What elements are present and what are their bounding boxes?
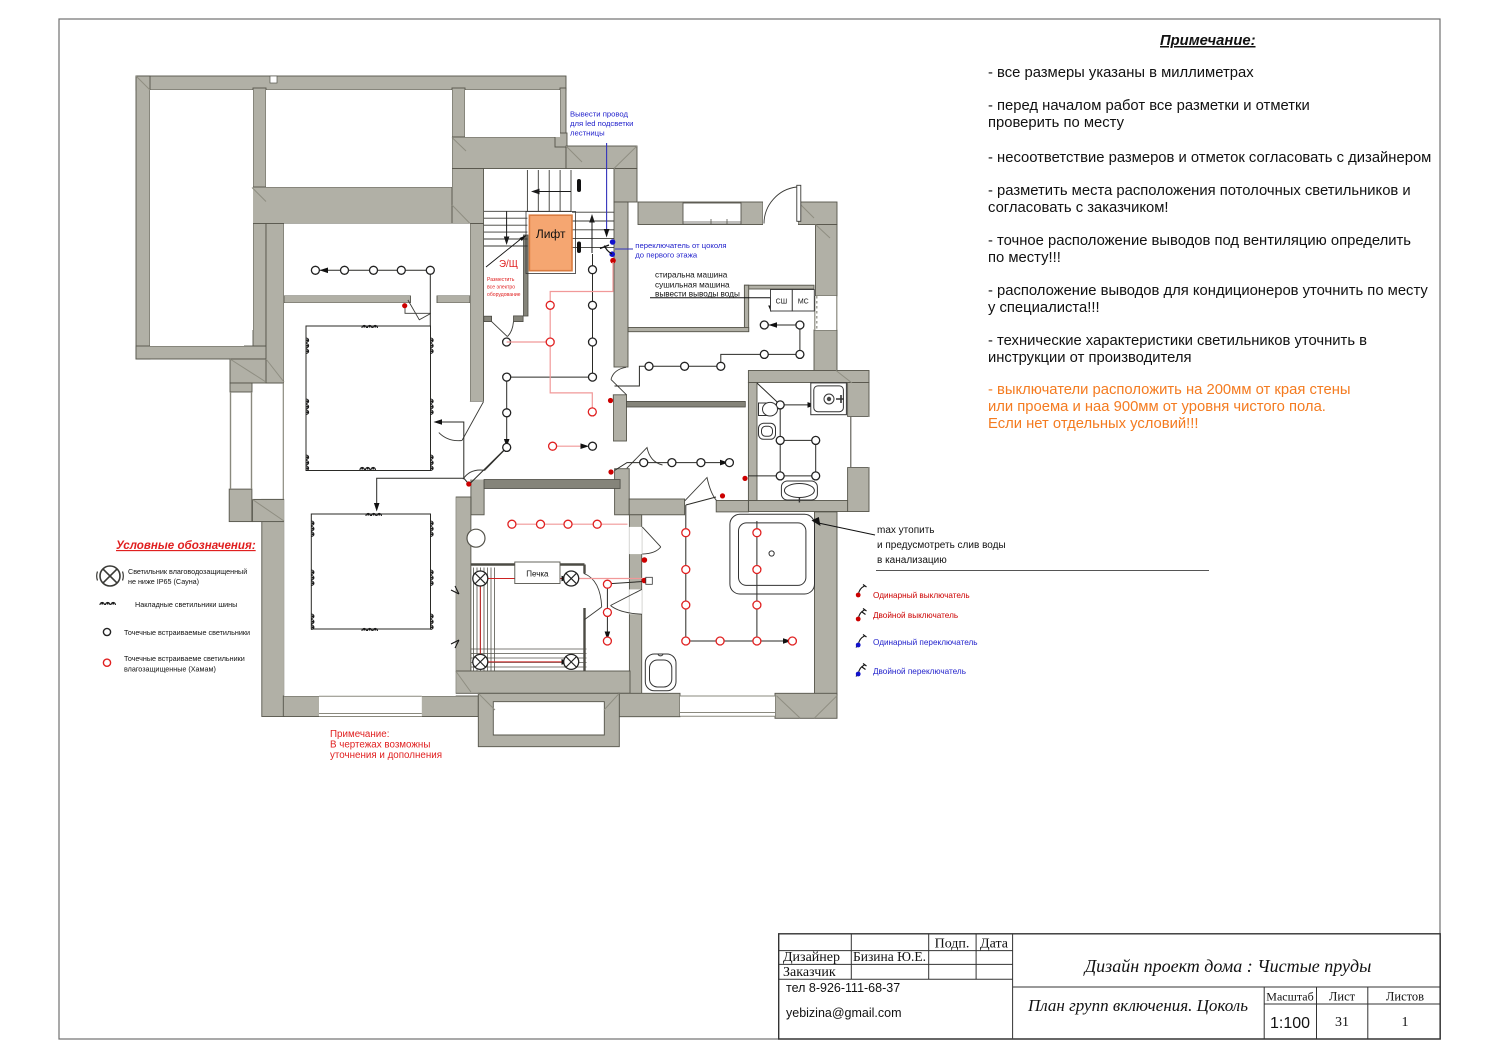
- svg-text:- разметить места расположения: - разметить места расположения потолочны…: [988, 183, 1411, 199]
- svg-text:- несоответствие размеров и от: - несоответствие размеров и отметок согл…: [988, 150, 1431, 166]
- svg-text:и предусмотреть слив воды: и предусмотреть слив воды: [877, 540, 1006, 551]
- svg-text:Разместить: Разместить: [487, 277, 515, 283]
- svg-text:- расположение выводов для кон: - расположение выводов для кондиционеров…: [988, 283, 1428, 299]
- svg-text:- точное расположение выводов: - точное расположение выводов под вентил…: [988, 233, 1411, 249]
- svg-text:влагозащищенные (Хамам): влагозащищенные (Хамам): [124, 665, 216, 674]
- svg-text:Двойной переключатель: Двойной переключатель: [873, 667, 966, 676]
- svg-text:Печка: Печка: [526, 570, 549, 579]
- svg-text:Дата: Дата: [980, 937, 1009, 952]
- svg-text:Одинарный переключатель: Одинарный переключатель: [873, 638, 978, 647]
- svg-text:Листов: Листов: [1386, 990, 1424, 1004]
- svg-text:Точечные встраиваеме светильни: Точечные встраиваеме светильники: [124, 654, 245, 663]
- svg-text:Условные обозначения:: Условные обозначения:: [116, 539, 256, 552]
- svg-text:у специалиста!!!: у специалиста!!!: [988, 300, 1100, 316]
- svg-text:Если нет отдельных условий!!!: Если нет отдельных условий!!!: [988, 416, 1199, 432]
- svg-text:Двойной выключатель: Двойной выключатель: [873, 611, 958, 620]
- svg-text:оборудование: оборудование: [487, 292, 521, 298]
- svg-text:по месту!!!: по месту!!!: [988, 250, 1061, 266]
- svg-text:лестницы: лестницы: [570, 129, 605, 138]
- svg-text:- технические характеристики с: - технические характеристики светильнико…: [988, 333, 1367, 349]
- svg-text:Примечание:: Примечание:: [330, 729, 389, 740]
- svg-text:или проема и наа 900мм от уров: или проема и наа 900мм от уровня чистого…: [988, 399, 1326, 415]
- svg-text:инструкции от производителя: инструкции от производителя: [988, 350, 1191, 366]
- svg-text:Масштаб: Масштаб: [1266, 990, 1313, 1004]
- svg-text:переключатель от цоколя: переключатель от цоколя: [635, 241, 726, 250]
- svg-text:все электро: все электро: [487, 285, 515, 291]
- svg-text:сушильная машина: сушильная машина: [655, 280, 730, 289]
- svg-text:Э/Щ: Э/Щ: [499, 259, 518, 270]
- svg-text:Лист: Лист: [1329, 990, 1356, 1004]
- svg-text:Накладные светильники шины: Накладные светильники шины: [135, 600, 237, 609]
- svg-text:1: 1: [1402, 1015, 1409, 1030]
- svg-text:- перед началом работ все разм: - перед началом работ все разметки и отм…: [988, 98, 1310, 114]
- svg-text:СШ: СШ: [776, 299, 787, 306]
- svg-text:в канализацию: в канализацию: [877, 555, 947, 566]
- svg-text:согласовать с заказчиком!: согласовать с заказчиком!: [988, 200, 1169, 216]
- svg-text:до первого этажа: до первого этажа: [635, 251, 698, 260]
- svg-text:стиральна машина: стиральна машина: [655, 271, 728, 280]
- svg-text:- выключатели расположить на 2: - выключатели расположить на 200мм от кр…: [988, 382, 1351, 398]
- svg-text:Точечные встраиваемые светильн: Точечные встраиваемые светильники: [124, 628, 250, 637]
- svg-text:проверить по месту: проверить по месту: [988, 115, 1125, 131]
- svg-text:Вывести провод: Вывести провод: [570, 110, 629, 119]
- svg-text:Бизина Ю.Е.: Бизина Ю.Е.: [853, 949, 926, 964]
- svg-text:Дизайн проект дома : Чистые пр: Дизайн проект дома : Чистые пруды: [1083, 956, 1372, 976]
- svg-text:Одинарный выключатель: Одинарный выключатель: [873, 591, 970, 600]
- svg-text:тел 8-926-111-68-37: тел 8-926-111-68-37: [786, 981, 900, 995]
- svg-text:План групп включения. Цоколь: План групп включения. Цоколь: [1027, 996, 1248, 1015]
- svg-text:Заказчик: Заказчик: [783, 965, 836, 980]
- svg-text:- все размеры указаны в миллим: - все размеры указаны в миллиметрах: [988, 65, 1254, 81]
- svg-text:Примечание:: Примечание:: [1160, 33, 1256, 49]
- svg-text:уточнения и дополнения: уточнения и дополнения: [330, 750, 442, 761]
- svg-text:не ниже IP65 (Сауна): не ниже IP65 (Сауна): [128, 577, 199, 586]
- svg-text:1:100: 1:100: [1270, 1015, 1310, 1032]
- svg-text:max утопить: max утопить: [877, 525, 935, 536]
- svg-text:МС: МС: [798, 299, 809, 306]
- svg-text:В чертежах возможны: В чертежах возможны: [330, 740, 430, 751]
- svg-text:Лифт: Лифт: [536, 227, 566, 241]
- svg-text:для led подсветки: для led подсветки: [570, 119, 633, 128]
- svg-text:Дизайнер: Дизайнер: [783, 950, 840, 965]
- svg-text:Светильник влаговодозащищенный: Светильник влаговодозащищенный: [128, 567, 247, 576]
- svg-text:Подп.: Подп.: [935, 937, 970, 952]
- svg-text:yebizina@gmail.com: yebizina@gmail.com: [786, 1006, 902, 1020]
- svg-text:31: 31: [1335, 1015, 1349, 1030]
- svg-text:вывести выводы воды: вывести выводы воды: [655, 289, 740, 298]
